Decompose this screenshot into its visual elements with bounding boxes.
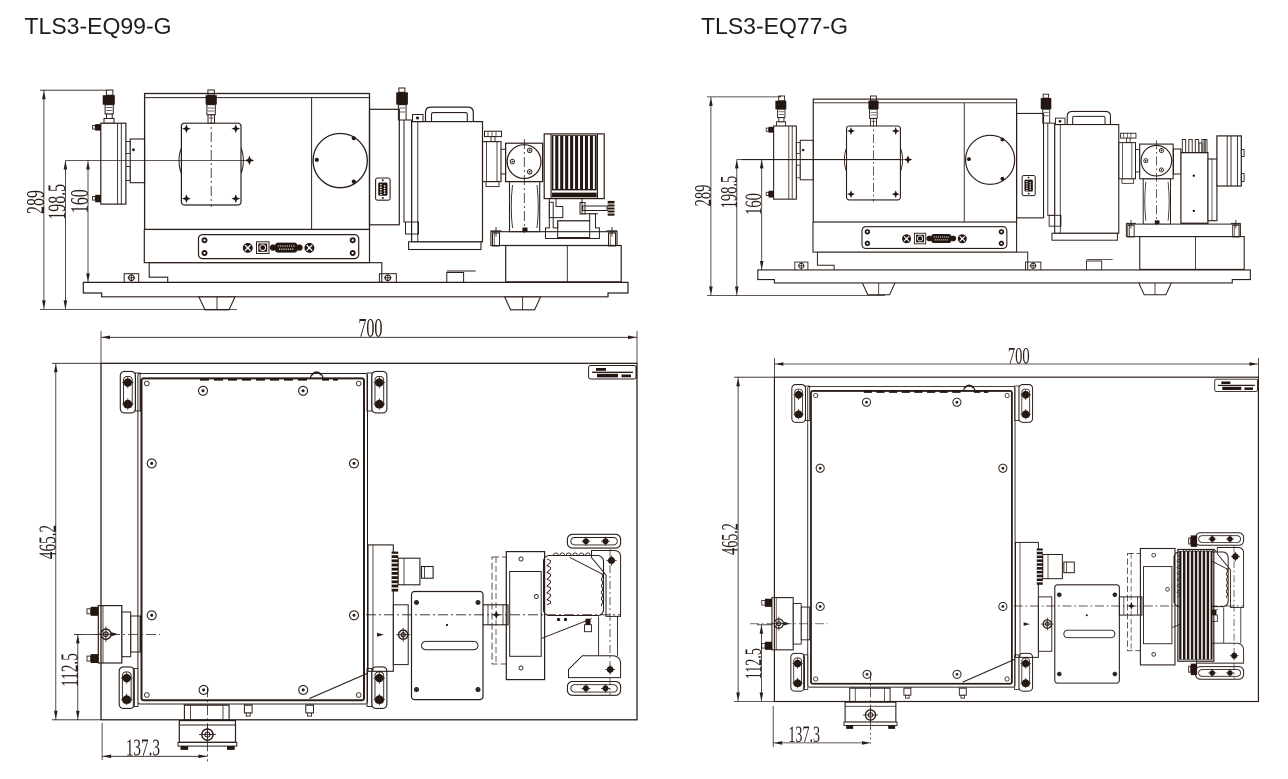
svg-text:112.5: 112.5 [57,653,83,687]
svg-text:137.3: 137.3 [126,735,160,761]
svg-text:465.2: 465.2 [718,523,743,555]
svg-text:289: 289 [691,185,716,207]
svg-text:112.5: 112.5 [742,648,767,679]
svg-text:465.2: 465.2 [35,525,61,559]
svg-text:700: 700 [358,314,382,343]
svg-text:TLS3-EQ99-G: TLS3-EQ99-G [25,13,172,39]
svg-text:137.3: 137.3 [788,723,820,748]
svg-text:700: 700 [1008,344,1030,369]
svg-text:198.5: 198.5 [717,176,742,209]
svg-text:160: 160 [742,193,767,215]
svg-text:160: 160 [65,189,94,213]
svg-text:TLS3-EQ77-G: TLS3-EQ77-G [701,13,848,39]
